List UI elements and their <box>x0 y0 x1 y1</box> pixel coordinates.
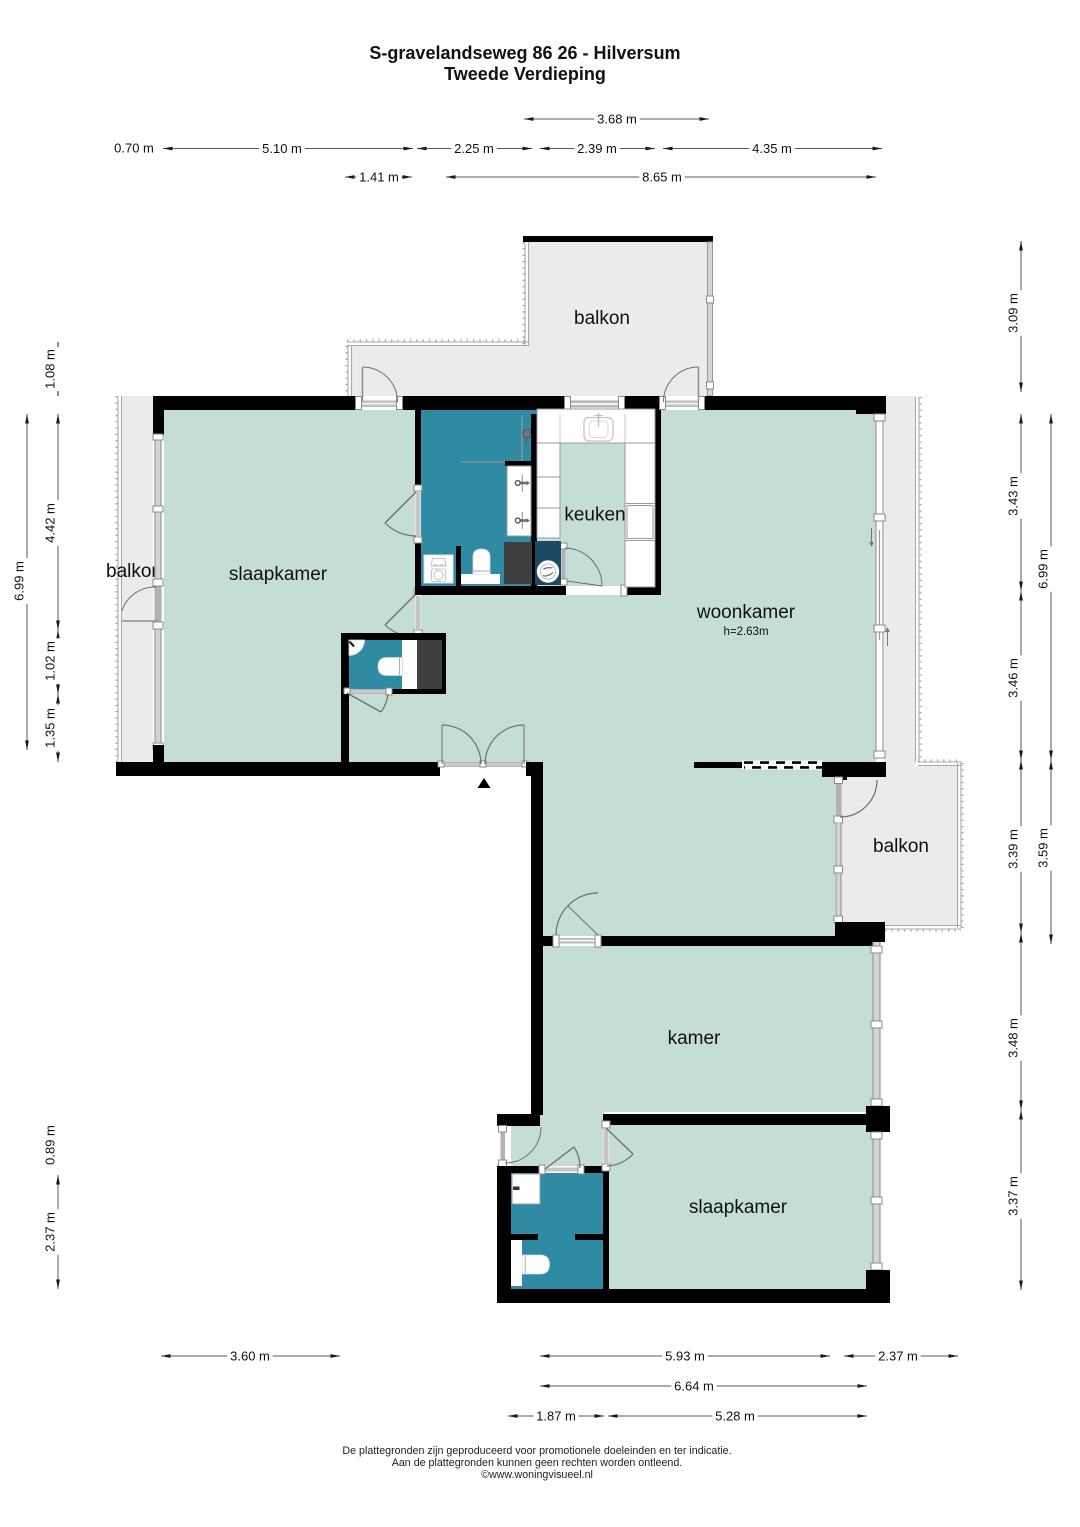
svg-text:3.09 m: 3.09 m <box>1006 293 1021 333</box>
svg-text:balkon: balkon <box>873 836 929 857</box>
svg-text:S-gravelandseweg 86 26 - Hilve: S-gravelandseweg 86 26 - Hilversum <box>369 43 680 63</box>
svg-text:4.42 m: 4.42 m <box>43 503 58 543</box>
svg-text:2.25 m: 2.25 m <box>454 141 494 156</box>
svg-text:1.35 m: 1.35 m <box>43 708 58 748</box>
svg-text:woonkamer: woonkamer <box>696 602 796 623</box>
svg-text:Aan de plattegronden kunnen ge: Aan de plattegronden kunnen geen rechten… <box>392 1457 683 1469</box>
svg-text:6.99 m: 6.99 m <box>12 561 27 601</box>
svg-text:8.65 m: 8.65 m <box>642 170 682 185</box>
svg-text:5.28 m: 5.28 m <box>715 1409 755 1424</box>
svg-text:3.43 m: 3.43 m <box>1006 476 1021 516</box>
svg-text:3.60 m: 3.60 m <box>230 1349 270 1364</box>
svg-text:3.59 m: 3.59 m <box>1036 828 1051 868</box>
svg-text:keuken: keuken <box>564 505 625 526</box>
svg-text:1.41 m: 1.41 m <box>359 170 399 185</box>
svg-text:slaapkamer: slaapkamer <box>229 564 328 585</box>
svg-text:5.93 m: 5.93 m <box>665 1349 705 1364</box>
svg-text:©www.woningvisueel.nl: ©www.woningvisueel.nl <box>481 1469 593 1481</box>
svg-text:balkon: balkon <box>574 308 630 329</box>
svg-text:2.37 m: 2.37 m <box>878 1349 918 1364</box>
svg-text:2.37 m: 2.37 m <box>43 1212 58 1252</box>
svg-text:slaapkamer: slaapkamer <box>689 1197 788 1218</box>
svg-text:1.02 m: 1.02 m <box>43 641 58 681</box>
svg-text:kamer: kamer <box>668 1028 721 1049</box>
svg-text:De plattegronden zijn geproduc: De plattegronden zijn geproduceerd voor … <box>342 1445 731 1457</box>
svg-text:1.08 m: 1.08 m <box>43 349 58 389</box>
svg-text:3.68 m: 3.68 m <box>597 112 637 127</box>
svg-text:3.37 m: 3.37 m <box>1006 1176 1021 1216</box>
svg-text:3.46 m: 3.46 m <box>1006 658 1021 698</box>
svg-text:3.48 m: 3.48 m <box>1006 1018 1021 1058</box>
svg-text:h=2.63m: h=2.63m <box>723 626 768 638</box>
svg-text:6.64 m: 6.64 m <box>674 1379 714 1394</box>
svg-text:6.99 m: 6.99 m <box>1036 549 1051 589</box>
svg-text:1.87 m: 1.87 m <box>536 1409 576 1424</box>
svg-text:5.10 m: 5.10 m <box>262 141 302 156</box>
svg-text:2.39 m: 2.39 m <box>577 141 617 156</box>
svg-text:4.35 m: 4.35 m <box>752 141 792 156</box>
svg-text:Tweede Verdieping: Tweede Verdieping <box>444 64 606 84</box>
svg-text:3.39 m: 3.39 m <box>1006 829 1021 869</box>
svg-text:0.89 m: 0.89 m <box>43 1125 58 1165</box>
svg-text:0.70 m: 0.70 m <box>114 141 154 156</box>
